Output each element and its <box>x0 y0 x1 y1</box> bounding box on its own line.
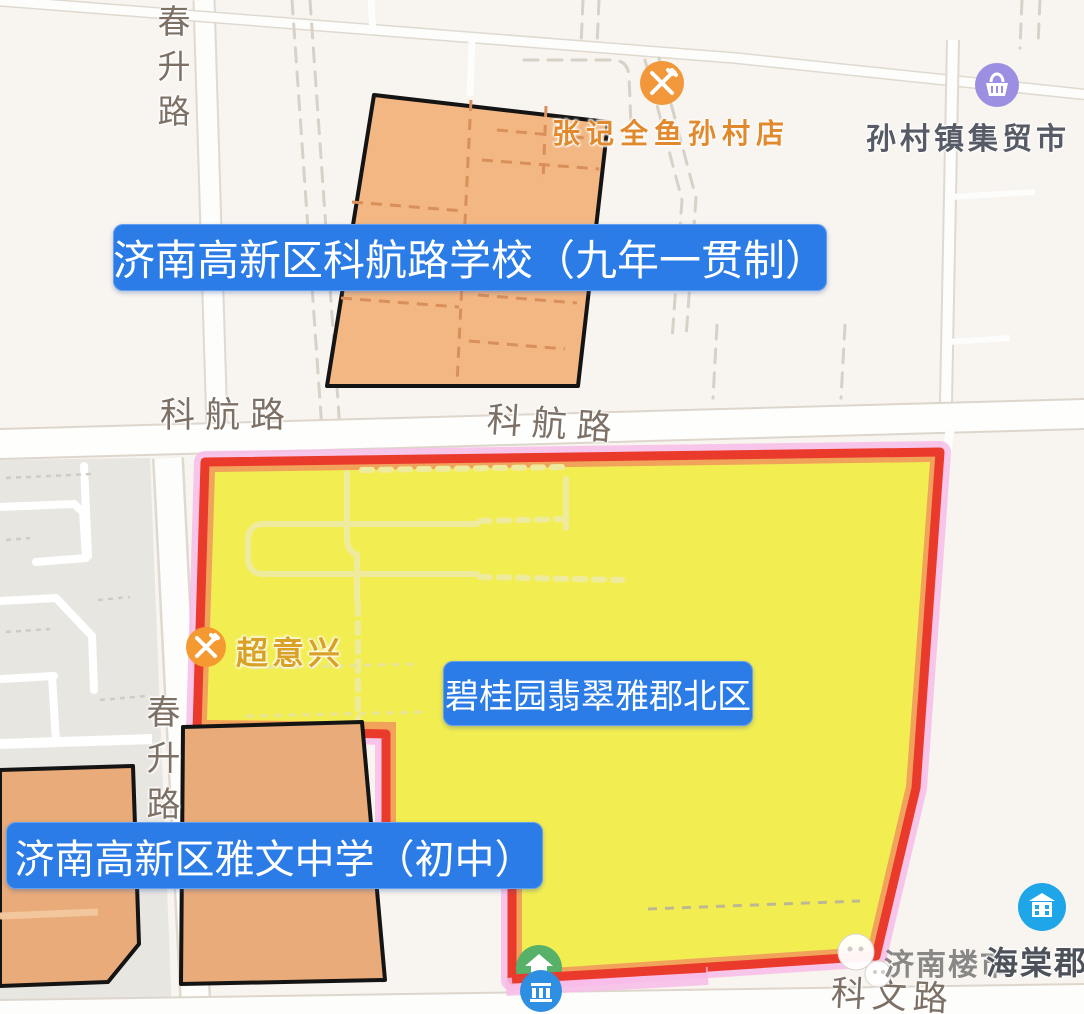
poi-label-zhangji[interactable]: 张记全鱼孙村店 <box>552 112 790 152</box>
road-label-chunsheng-top: 春升路 <box>147 4 195 139</box>
road-label-kehang-left: 科航路 <box>160 387 295 438</box>
poi-label-haitang[interactable]: 海棠郡 <box>986 938 1084 984</box>
community-icon[interactable] <box>1017 882 1067 937</box>
map-screenshot: 张记全鱼孙村店 孙村镇集贸市 超意兴 海棠郡 春升路 春升路 科航路 科航路 科… <box>0 0 1084 1014</box>
poi-label-market[interactable]: 孙村镇集贸市 <box>866 114 1070 158</box>
label-yawen-school[interactable]: 济南高新区雅文中学（初中） <box>6 822 543 889</box>
label-kehang-school[interactable]: 济南高新区科航路学校（九年一贯制） <box>113 224 827 291</box>
market-icon[interactable] <box>974 62 1020 113</box>
building-icon[interactable] <box>519 969 563 1014</box>
restaurant-icon[interactable] <box>185 626 227 673</box>
road-label-chunsheng-mid: 春升路 <box>136 694 185 832</box>
label-district[interactable]: 碧桂园翡翠雅郡北区 <box>443 661 753 726</box>
road-label-kehang-right: 科航路 <box>485 391 623 451</box>
restaurant-icon[interactable] <box>639 60 685 111</box>
poi-label-chaoyixing[interactable]: 超意兴 <box>236 628 344 674</box>
